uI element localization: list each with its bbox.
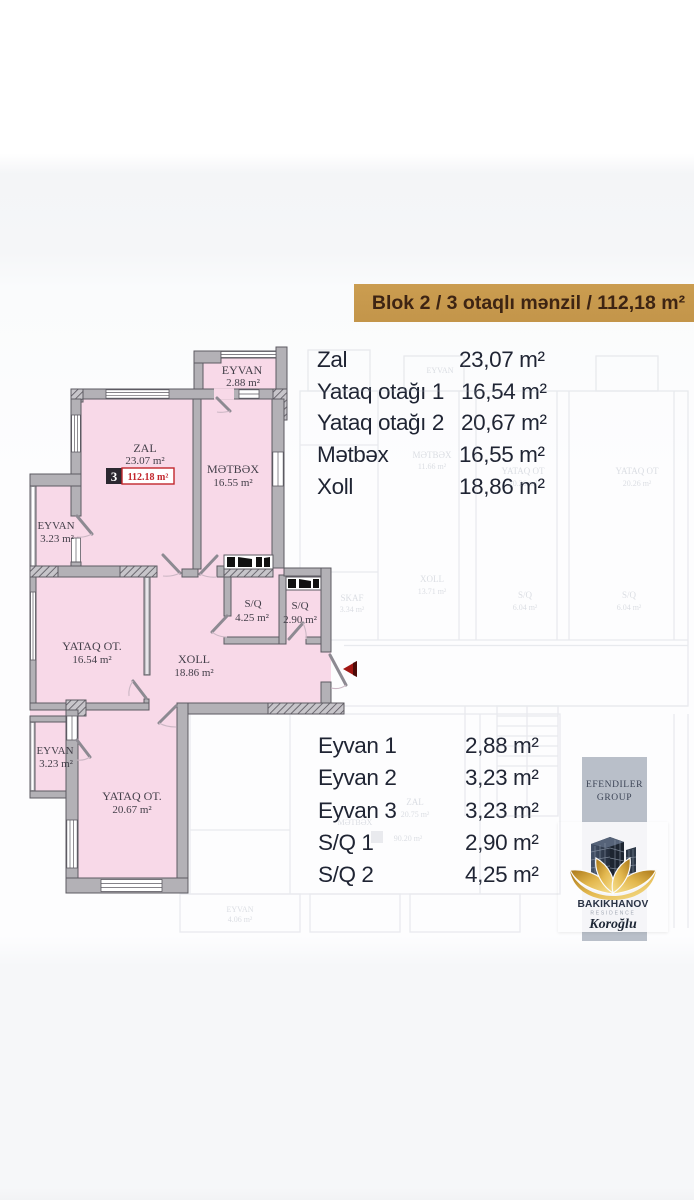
svg-text:3.23 m²: 3.23 m² — [39, 758, 74, 770]
svg-text:20.75 m²: 20.75 m² — [401, 810, 430, 819]
svg-text:11.66 m²: 11.66 m² — [418, 462, 447, 471]
svg-text:EYVAN: EYVAN — [36, 745, 73, 757]
svg-text:20.26 m²: 20.26 m² — [623, 479, 652, 488]
svg-text:2.90 m²: 2.90 m² — [283, 614, 318, 626]
svg-text:XOLL: XOLL — [178, 652, 210, 666]
svg-text:EYVAN: EYVAN — [222, 363, 263, 377]
svg-text:3.23 m²: 3.23 m² — [40, 533, 75, 545]
svg-text:18.86 m²: 18.86 m² — [174, 667, 214, 679]
svg-text:EYVAN: EYVAN — [37, 520, 74, 532]
svg-text:S/Q: S/Q — [244, 598, 261, 610]
svg-text:ZAL: ZAL — [133, 441, 156, 455]
svg-text:MƏTBƏX: MƏTBƏX — [338, 818, 373, 827]
svg-text:ZAL: ZAL — [406, 797, 424, 807]
svg-text:YATAQ OT: YATAQ OT — [501, 466, 545, 476]
svg-text:13.71 m²: 13.71 m² — [418, 587, 447, 596]
svg-text:6.04 m²: 6.04 m² — [617, 603, 642, 612]
svg-text:YATAQ OT.: YATAQ OT. — [102, 789, 161, 803]
svg-text:SKAF: SKAF — [340, 593, 363, 603]
svg-text:20.67 m²: 20.67 m² — [112, 804, 152, 816]
svg-text:16.54 m²: 16.54 m² — [72, 654, 112, 666]
svg-text:YATAQ OT: YATAQ OT — [615, 466, 659, 476]
svg-text:3.34 m²: 3.34 m² — [340, 605, 365, 614]
svg-text:S/Q: S/Q — [291, 600, 308, 612]
svg-text:3: 3 — [111, 469, 118, 484]
svg-text:EYVAN: EYVAN — [427, 366, 454, 375]
svg-text:23.07 m²: 23.07 m² — [125, 455, 165, 467]
svg-text:2.88 m²: 2.88 m² — [226, 377, 261, 389]
svg-text:16.55 m²: 16.55 m² — [213, 477, 253, 489]
svg-text:MƏTBƏX: MƏTBƏX — [412, 450, 452, 460]
svg-text:6.04 m²: 6.04 m² — [513, 603, 538, 612]
svg-text:S/Q: S/Q — [518, 590, 533, 600]
svg-text:S/Q: S/Q — [622, 590, 637, 600]
svg-text:4.25 m²: 4.25 m² — [235, 612, 270, 624]
svg-text:XOLL: XOLL — [420, 574, 444, 584]
svg-text:112.18 m²: 112.18 m² — [128, 472, 169, 483]
svg-text:MƏTBƏX: MƏTBƏX — [207, 462, 259, 476]
svg-text:90.20 m²: 90.20 m² — [394, 834, 423, 843]
svg-text:20.26 m²: 20.26 m² — [509, 479, 538, 488]
svg-text:EYVAN: EYVAN — [227, 905, 254, 914]
svg-text:YATAQ OT.: YATAQ OT. — [62, 639, 121, 653]
svg-text:4.06 m²: 4.06 m² — [228, 915, 253, 924]
